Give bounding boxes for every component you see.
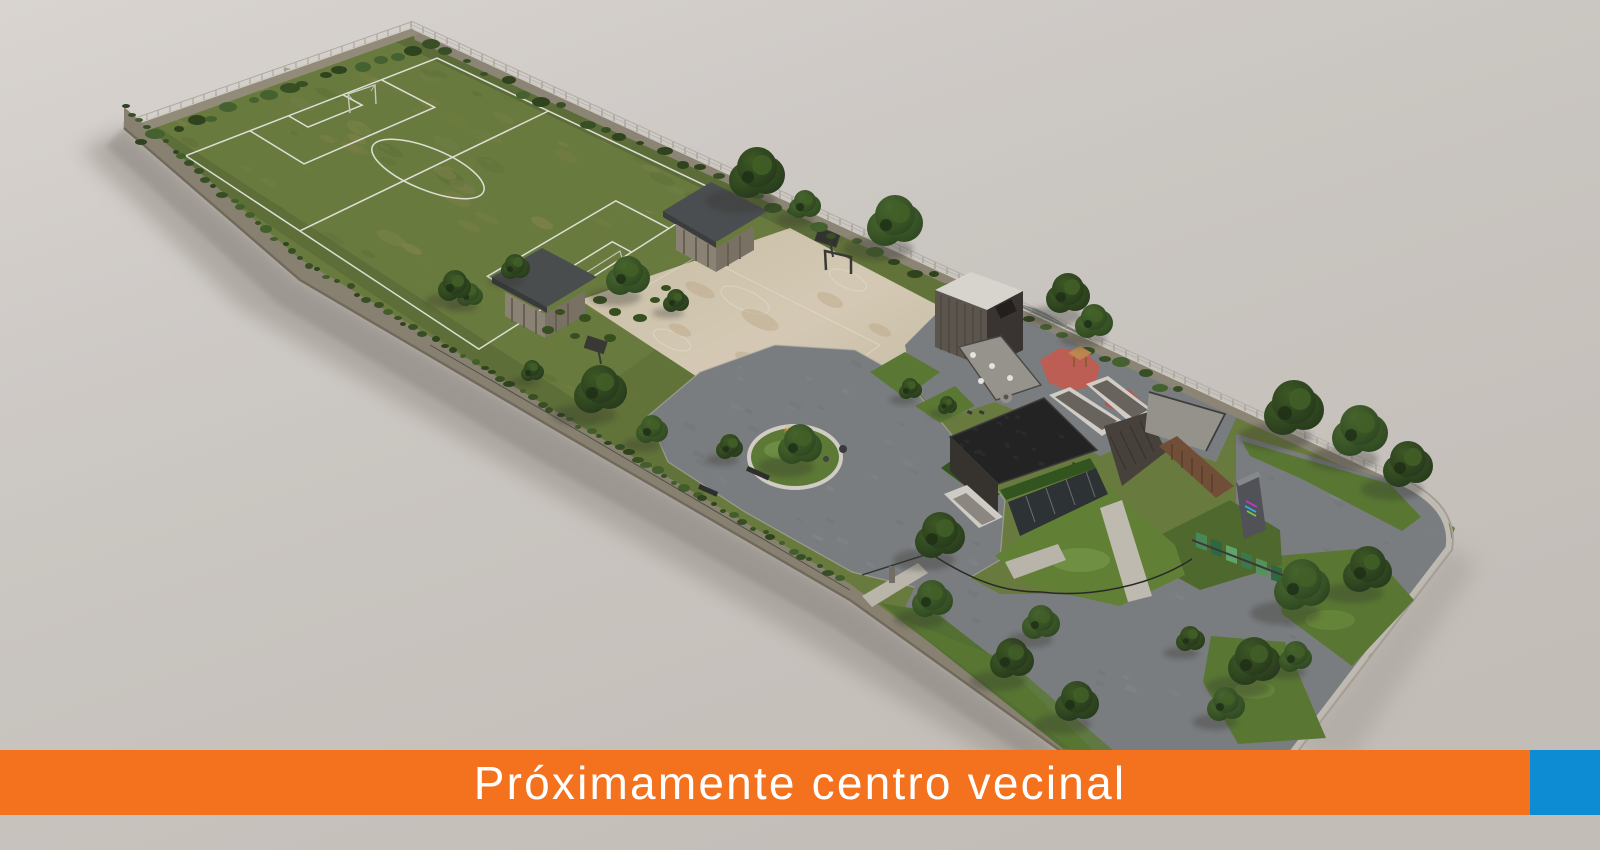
svg-text:Próximamente centro vecinal: Próximamente centro vecinal <box>474 757 1127 809</box>
